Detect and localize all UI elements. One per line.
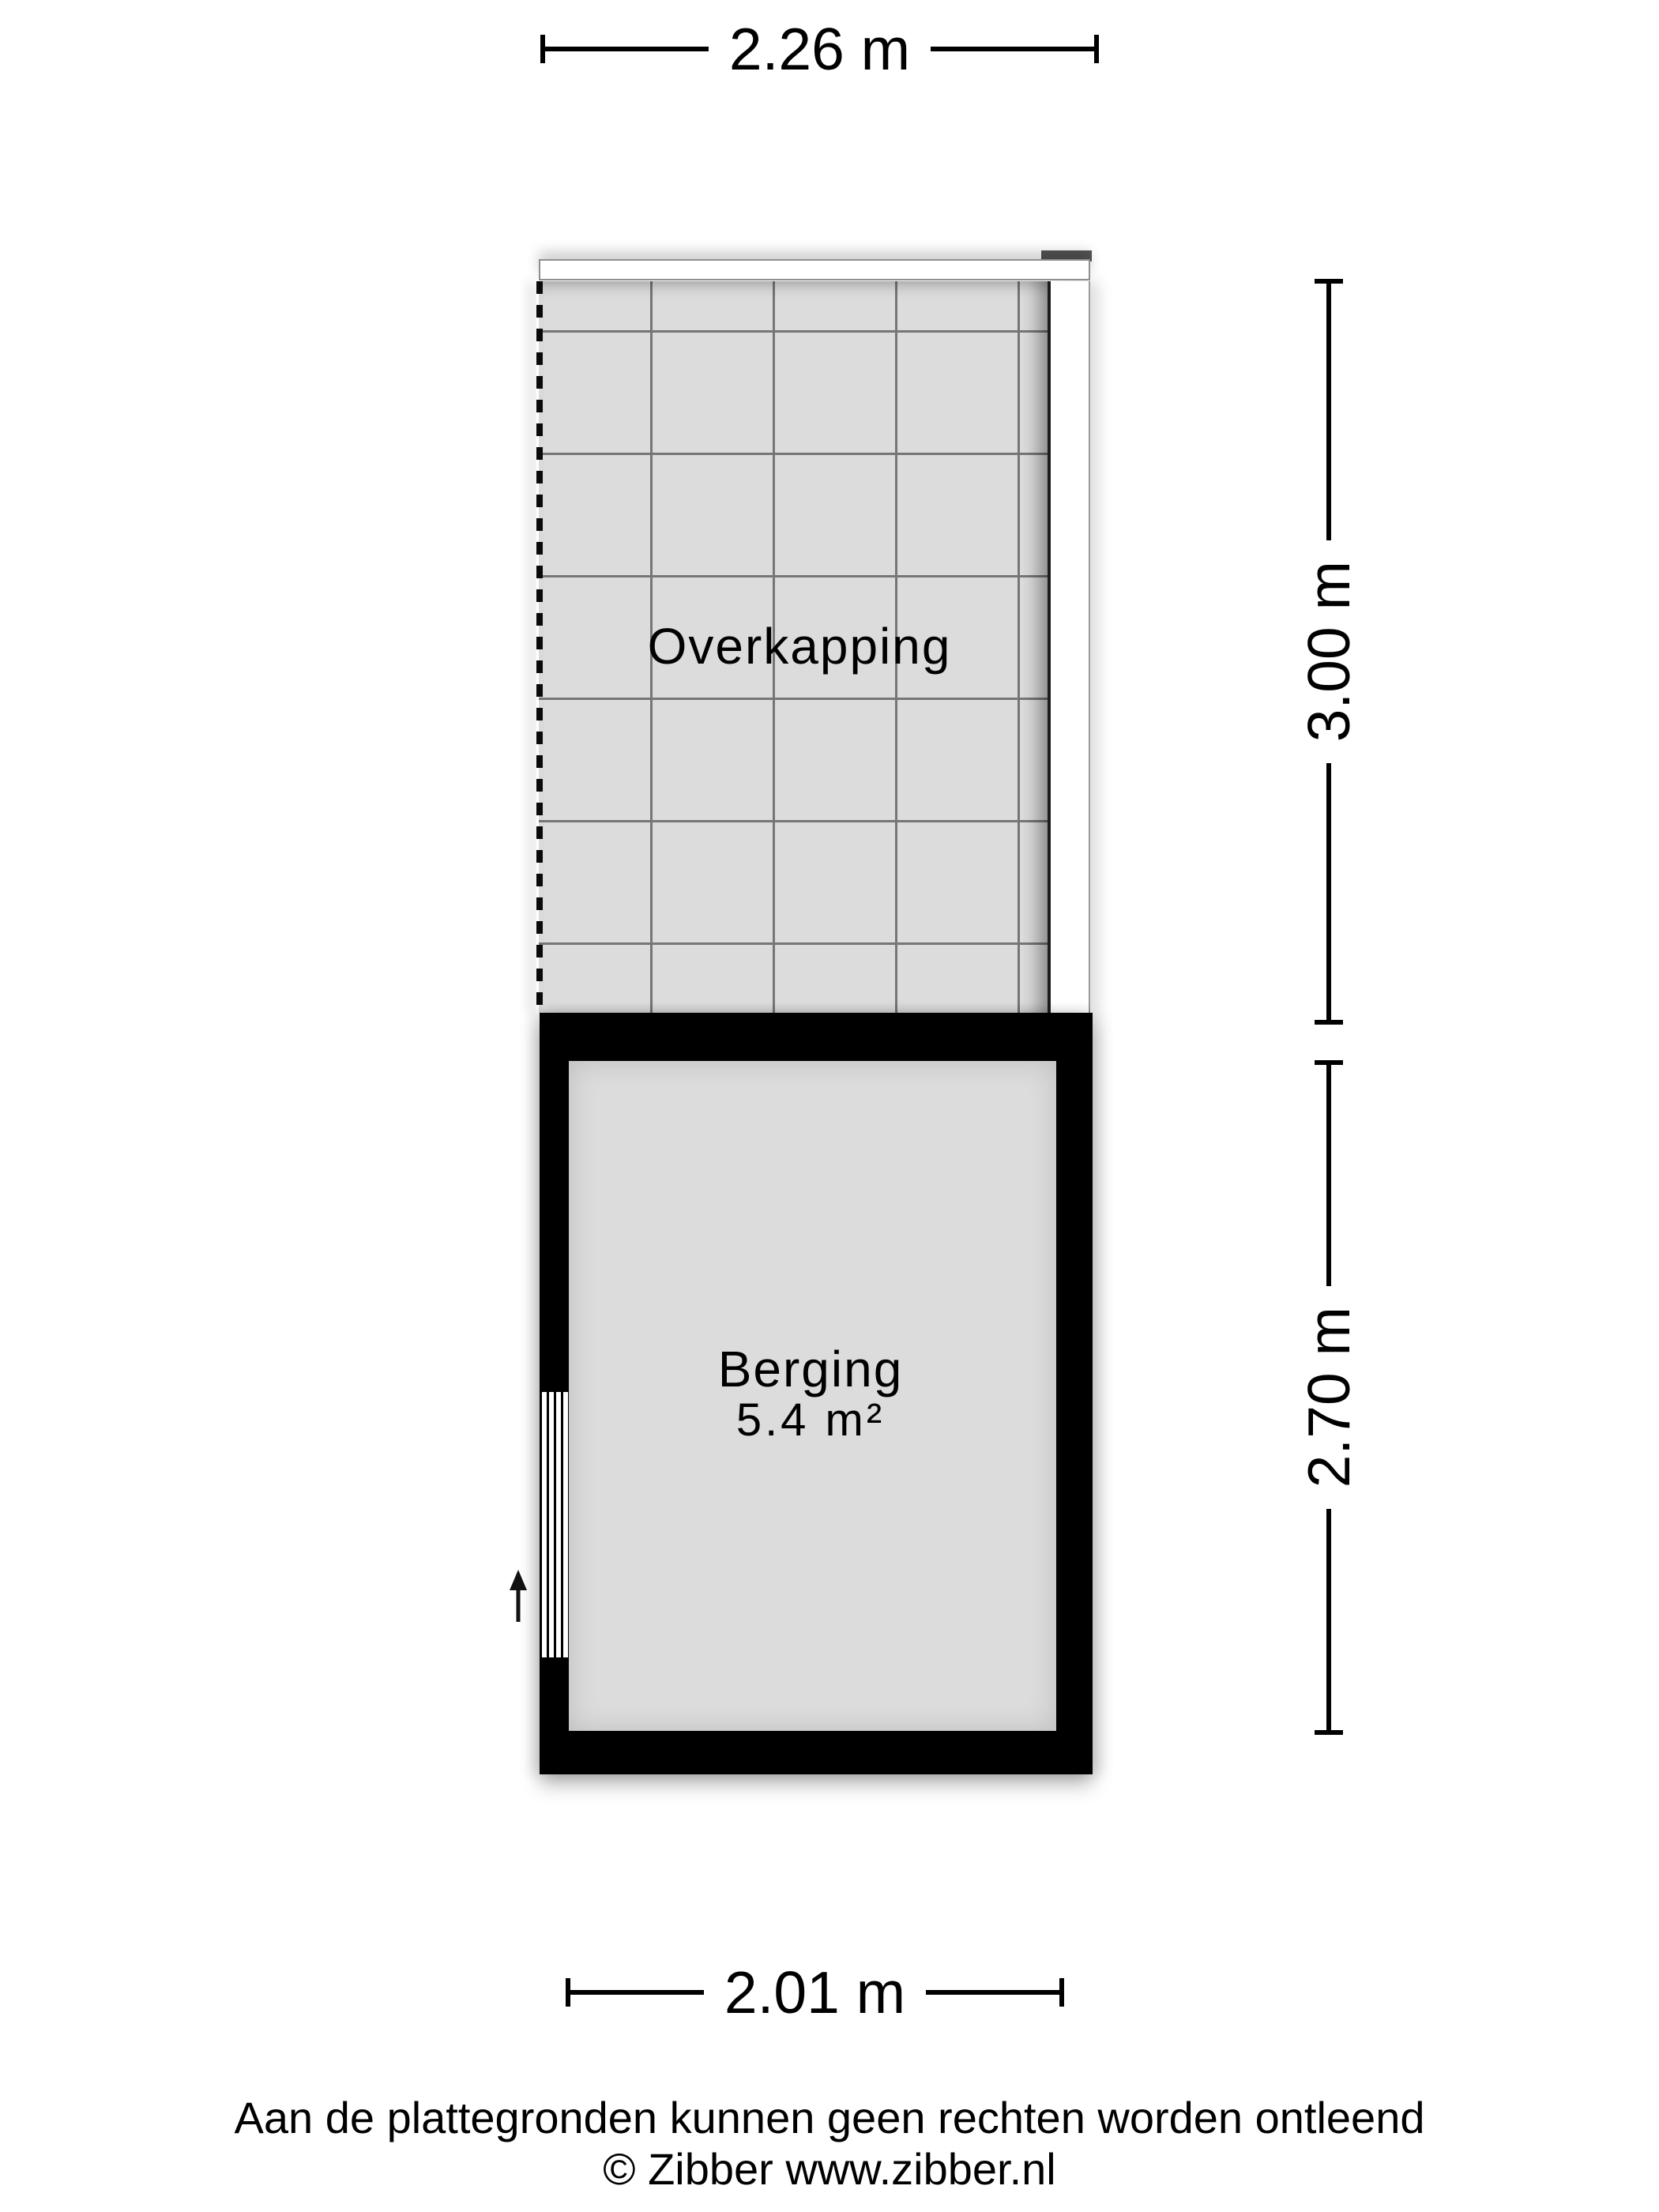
dimension-right-lower: 2.70 m [1313, 1060, 1345, 1735]
dimension-bottom-label: 2.01 m [704, 1963, 926, 2022]
overkapping-open-side-dashed-line [536, 281, 543, 1013]
dimension-top: 2.26 m [540, 21, 1099, 77]
dimension-line [570, 1990, 704, 1995]
dimension-tick [1315, 1020, 1343, 1025]
dimension-bottom: 2.01 m [566, 1964, 1064, 2021]
dimension-right-lower-label: 2.70 m [1300, 1286, 1359, 1508]
dimension-line [931, 47, 1094, 51]
footer-disclaimer: Aan de plattegronden kunnen geen rechten… [0, 2092, 1659, 2143]
berging-door [540, 1392, 569, 1657]
dimension-line [926, 1990, 1059, 1995]
dimension-tick [1094, 35, 1099, 63]
footer: Aan de plattegronden kunnen geen rechten… [0, 2092, 1659, 2195]
entrance-arrow-icon [496, 1568, 540, 1625]
overkapping-roof-edge [539, 259, 1090, 280]
dimension-line [545, 47, 709, 51]
dimension-tick [1315, 1730, 1343, 1735]
overkapping-label: Overkapping [648, 621, 952, 671]
dimension-right-upper: 3.00 m [1313, 279, 1345, 1025]
dimension-right-upper-label: 3.00 m [1300, 540, 1359, 762]
berging-area-label: 5.4 m² [736, 1398, 885, 1443]
footer-copyright: © Zibber www.zibber.nl [0, 2143, 1659, 2195]
dimension-line [1326, 1065, 1331, 1286]
overkapping-right-wall [1048, 281, 1090, 1013]
dimension-line [1326, 284, 1331, 540]
berging-label: Berging [718, 1344, 904, 1394]
dimension-tick [1059, 1978, 1064, 2007]
dimension-top-label: 2.26 m [709, 20, 931, 79]
dimension-line [1326, 763, 1331, 1020]
dimension-line [1326, 1509, 1331, 1730]
